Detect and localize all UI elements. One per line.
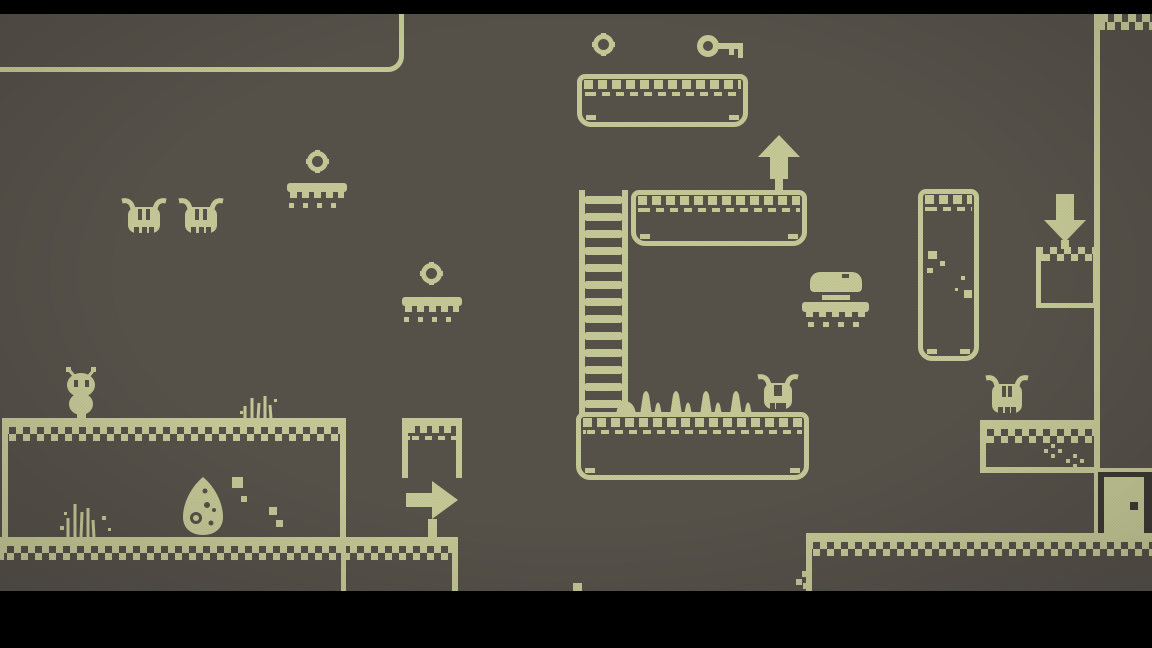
egg-rock bbox=[181, 477, 225, 535]
spider-enemy-3 bbox=[755, 373, 801, 414]
ground-bottom-left bbox=[0, 537, 458, 591]
particles-2 bbox=[266, 507, 286, 529]
platform-spikes bbox=[576, 412, 809, 480]
exit-door bbox=[1098, 472, 1152, 533]
room-outline-top-left bbox=[0, 14, 404, 72]
arrow-down-sign bbox=[1042, 192, 1088, 249]
floating-platform-1 bbox=[287, 183, 347, 213]
spider-enemy-1 bbox=[119, 197, 169, 238]
platform-key-ledge bbox=[577, 74, 748, 127]
game-screen bbox=[0, 0, 1152, 648]
arrow-right-sign bbox=[404, 479, 462, 539]
arrow-up-sign bbox=[756, 133, 802, 193]
game-viewport[interactable] bbox=[0, 14, 1152, 591]
coin-icon-2 bbox=[306, 150, 329, 173]
sparkle-2 bbox=[1066, 454, 1086, 470]
letterbox-top bbox=[0, 0, 1152, 14]
tall-column-platform bbox=[918, 189, 979, 361]
key-icon bbox=[697, 33, 745, 59]
hollow-box-room bbox=[2, 418, 346, 540]
checker-strip-top-right bbox=[1100, 14, 1152, 33]
spider-enemy-2 bbox=[176, 197, 226, 238]
burger-item-platform bbox=[802, 270, 869, 332]
letterbox-bottom bbox=[0, 591, 1152, 648]
table-platform bbox=[402, 418, 462, 478]
floating-platform-2 bbox=[402, 297, 462, 327]
spider-enemy-4 bbox=[983, 374, 1031, 418]
particles-1 bbox=[232, 477, 256, 503]
pixel-debris bbox=[573, 583, 582, 591]
ground-bottom-right bbox=[806, 533, 1152, 591]
coin-icon-1 bbox=[592, 33, 615, 56]
player-character bbox=[60, 366, 104, 420]
coin-icon-3 bbox=[420, 262, 443, 285]
block-below-arrow bbox=[1036, 247, 1098, 308]
sparkle-1 bbox=[1044, 444, 1062, 458]
grass-tuft-inside bbox=[58, 498, 114, 538]
corner-steps bbox=[796, 571, 810, 591]
grass-tuft-top bbox=[239, 392, 279, 419]
spikes-row bbox=[614, 383, 758, 415]
divider-line bbox=[341, 546, 346, 591]
platform-mid bbox=[631, 190, 807, 246]
